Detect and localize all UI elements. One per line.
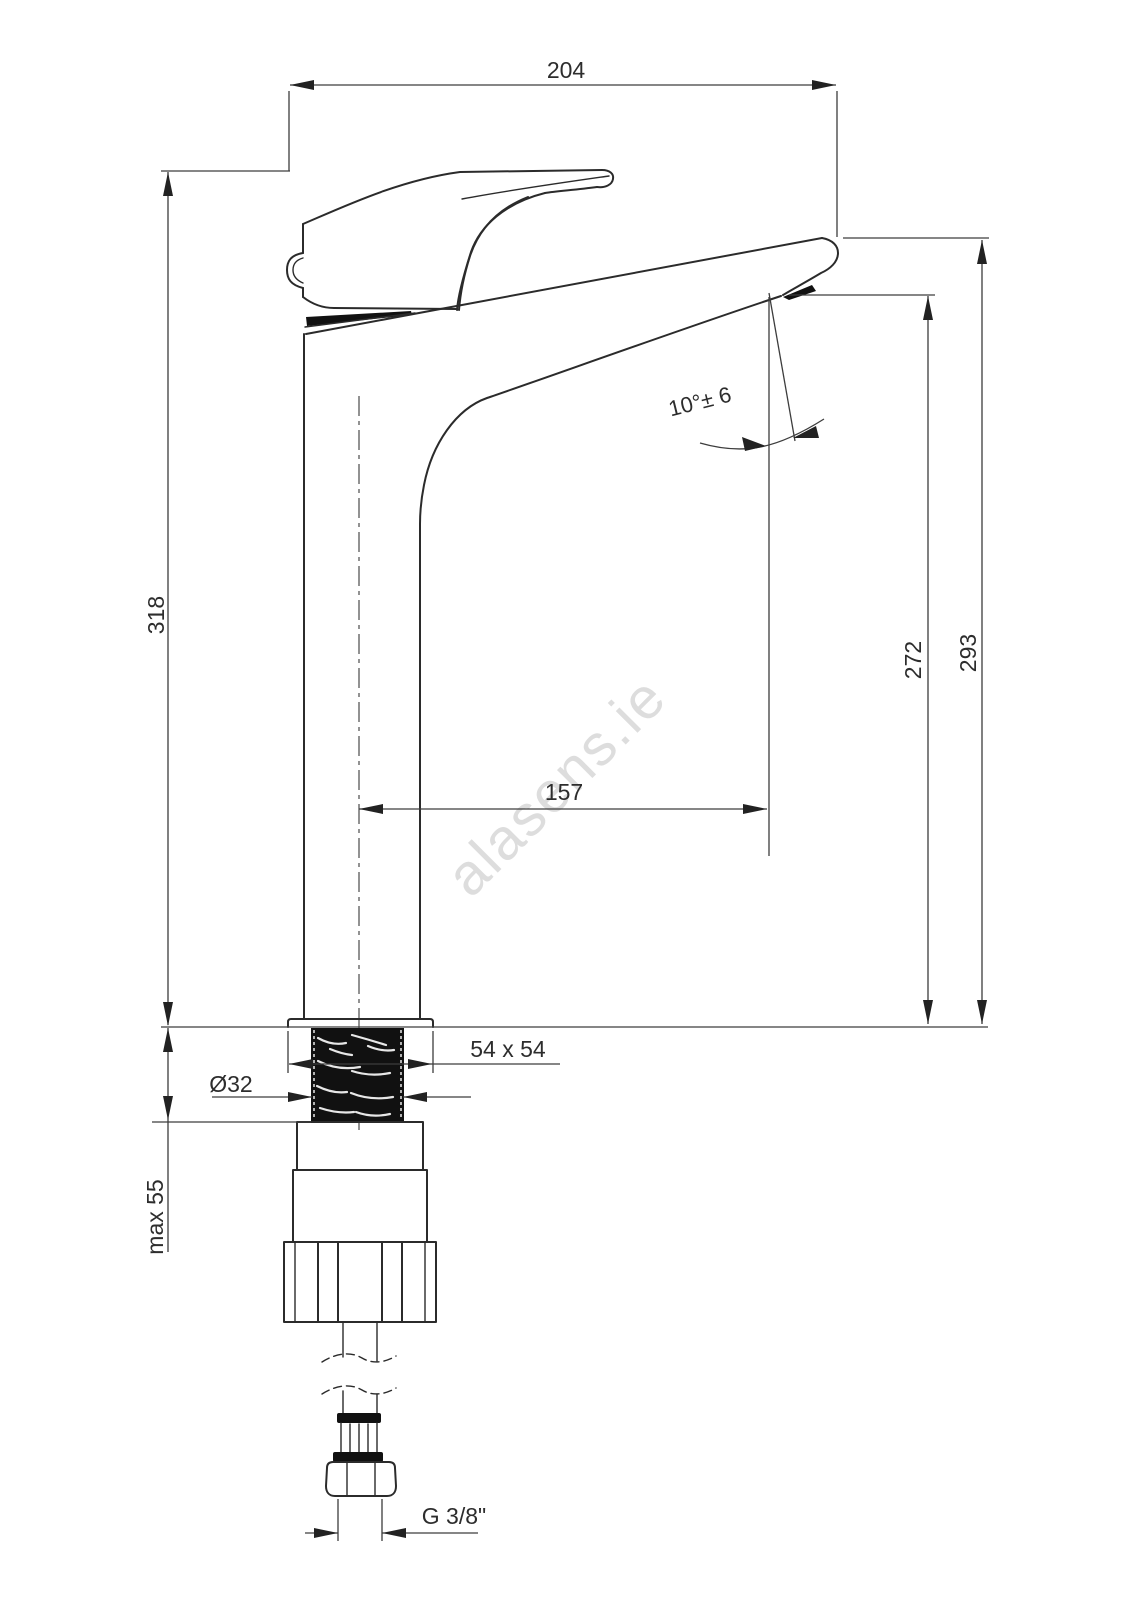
dim-spout-top-height-label: 293 [955, 634, 981, 672]
dim-overall-reach-label: 204 [547, 57, 586, 83]
dim-spout-angle-label: 10°± 6 [666, 382, 734, 422]
dim-overall-height-label: 318 [143, 596, 169, 634]
faucet-dimension-drawing: alasens.ie [0, 0, 1131, 1600]
hose-hex-nut [326, 1462, 396, 1496]
angle-slant-line [769, 293, 795, 441]
thread-shank [311, 1028, 404, 1122]
dim-hose-connection-label: G 3/8" [422, 1503, 486, 1529]
dimension-labels: 204 318 272 293 157 10°± 6 54 x 54 Ø32 m… [142, 57, 981, 1529]
dim-outlet-height-label: 272 [900, 641, 926, 679]
hose-break-upper [322, 1354, 396, 1362]
dim-max-mount-thickness-label: max 55 [142, 1179, 168, 1254]
hose-break-lower [322, 1386, 396, 1394]
mounting-nut [284, 1122, 436, 1322]
technical-drawing-page: alasens.ie [0, 0, 1131, 1600]
supply-hose [322, 1322, 396, 1496]
faucet-outline [287, 170, 838, 1027]
dim-base-plate-label: 54 x 54 [470, 1036, 546, 1062]
dim-shank-diameter-label: Ø32 [209, 1071, 252, 1097]
castellated-crown [284, 1242, 436, 1322]
dim-outlet-projection-label: 157 [545, 779, 583, 805]
base-flange [288, 1019, 433, 1027]
